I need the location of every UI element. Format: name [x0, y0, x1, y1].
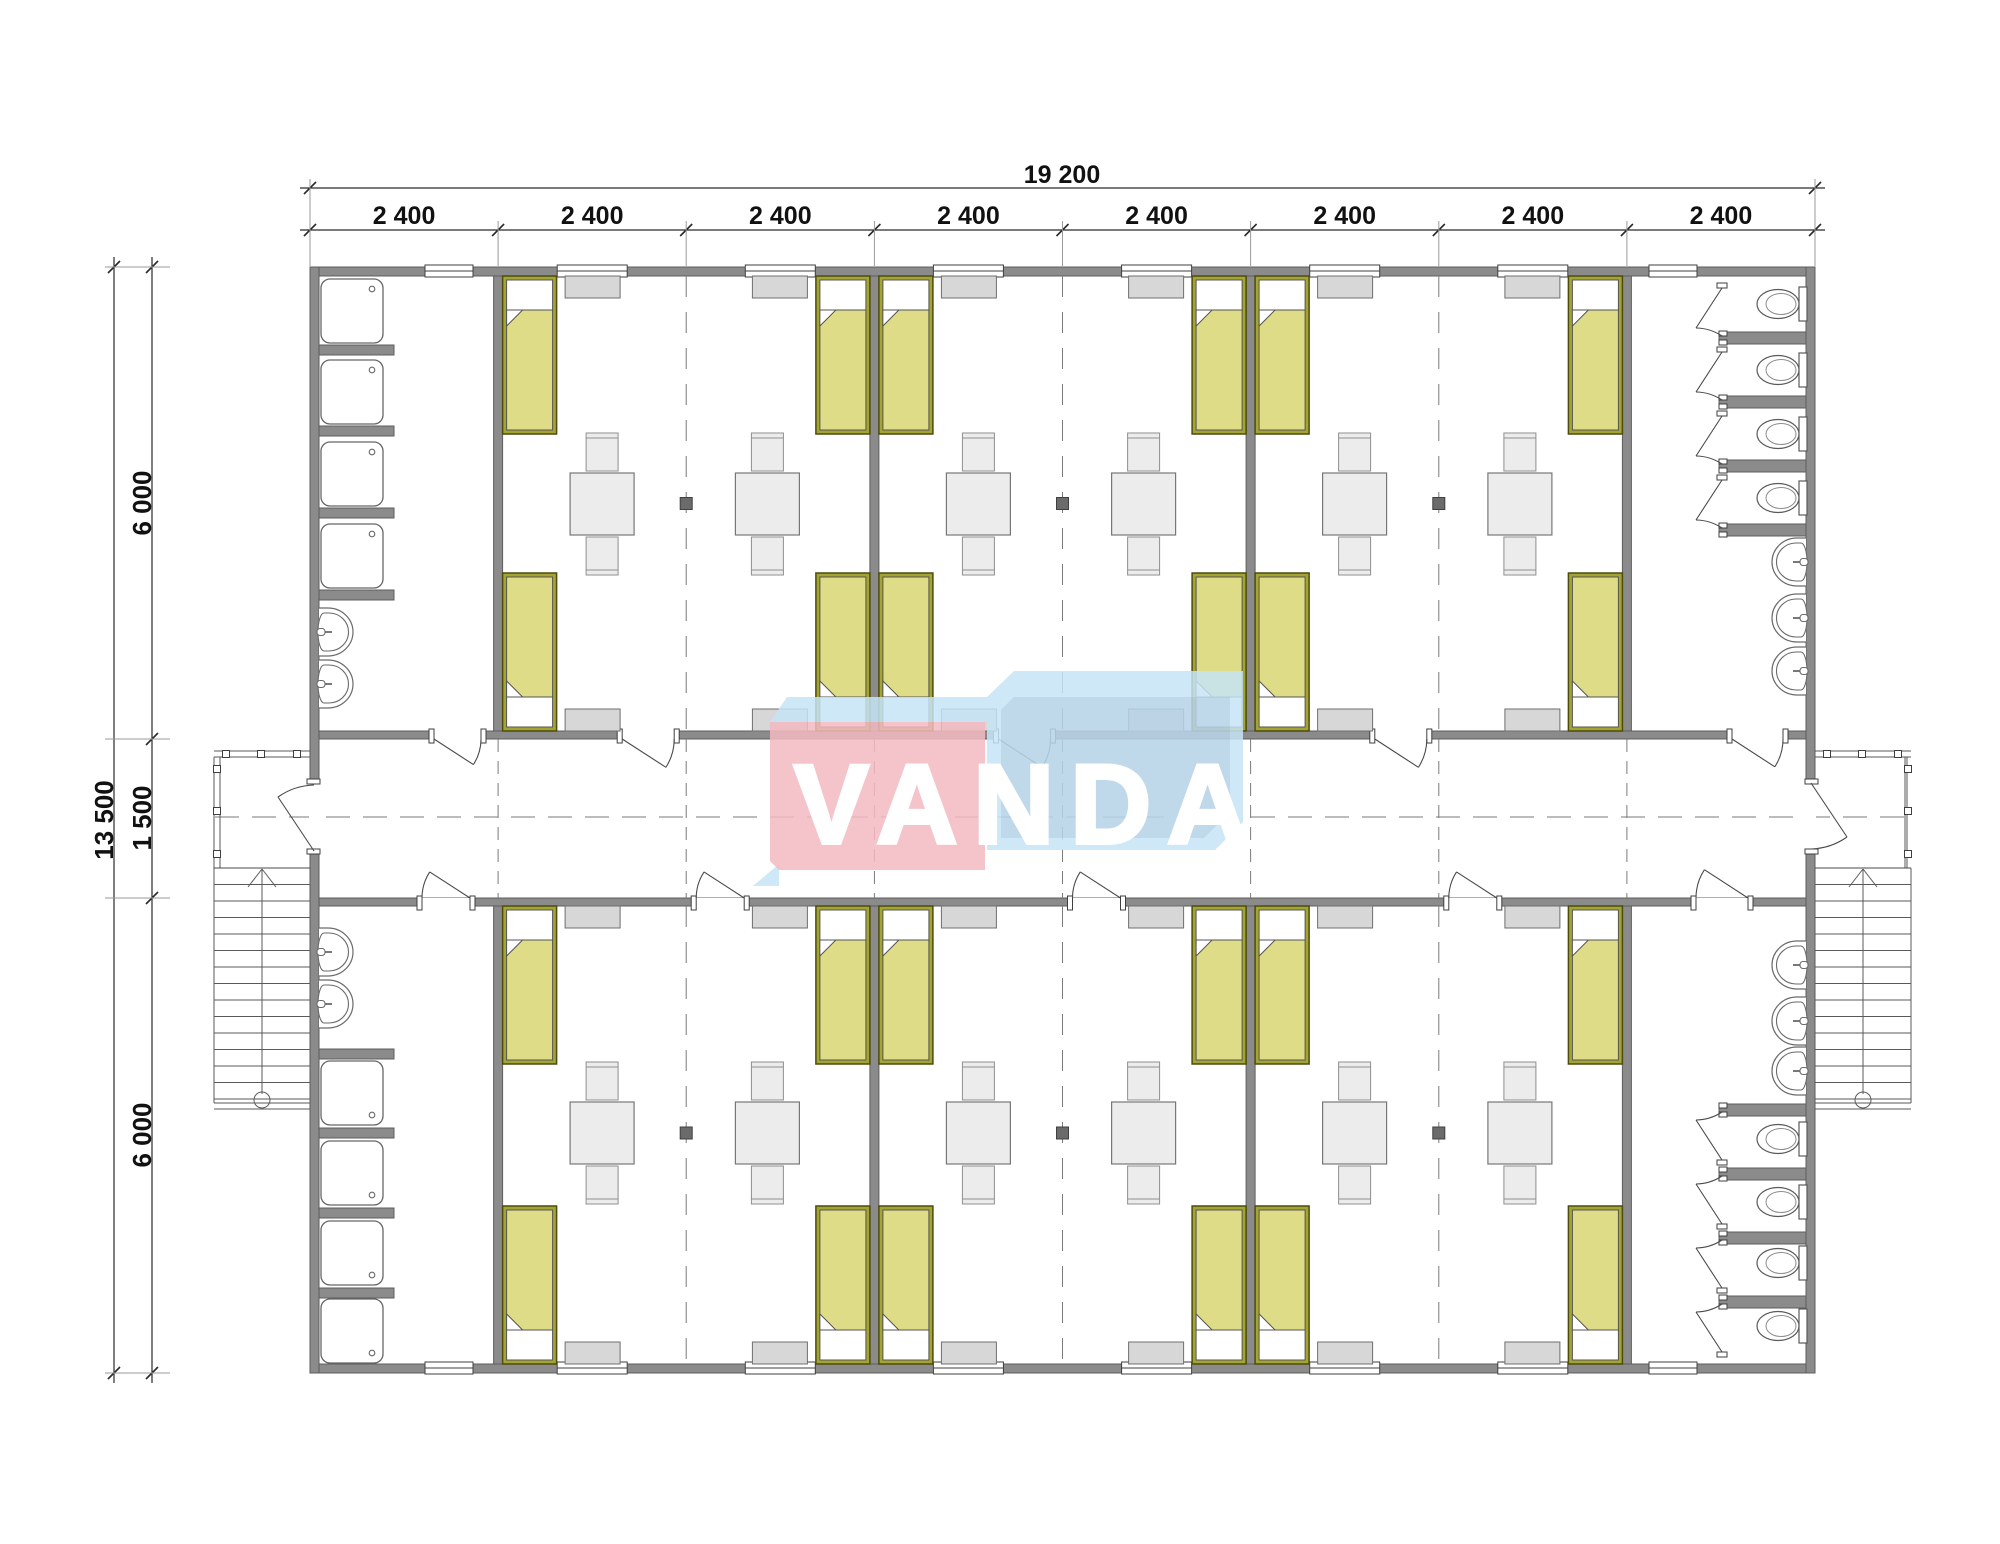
svg-text:2 400: 2 400 [1690, 202, 1753, 230]
svg-text:2 400: 2 400 [373, 202, 436, 230]
svg-text:2 400: 2 400 [749, 202, 812, 230]
svg-text:2 400: 2 400 [1125, 202, 1188, 230]
svg-text:19 200: 19 200 [1024, 161, 1100, 189]
svg-text:2 400: 2 400 [937, 202, 1000, 230]
svg-text:13 500: 13 500 [89, 780, 119, 860]
svg-text:2 400: 2 400 [1502, 202, 1565, 230]
svg-text:1 500: 1 500 [127, 785, 157, 850]
svg-text:6 000: 6 000 [127, 1102, 157, 1167]
svg-text:6 000: 6 000 [127, 470, 157, 535]
svg-text:VANDA: VANDA [794, 742, 1264, 867]
svg-text:2 400: 2 400 [1313, 202, 1376, 230]
svg-text:2 400: 2 400 [561, 202, 624, 230]
